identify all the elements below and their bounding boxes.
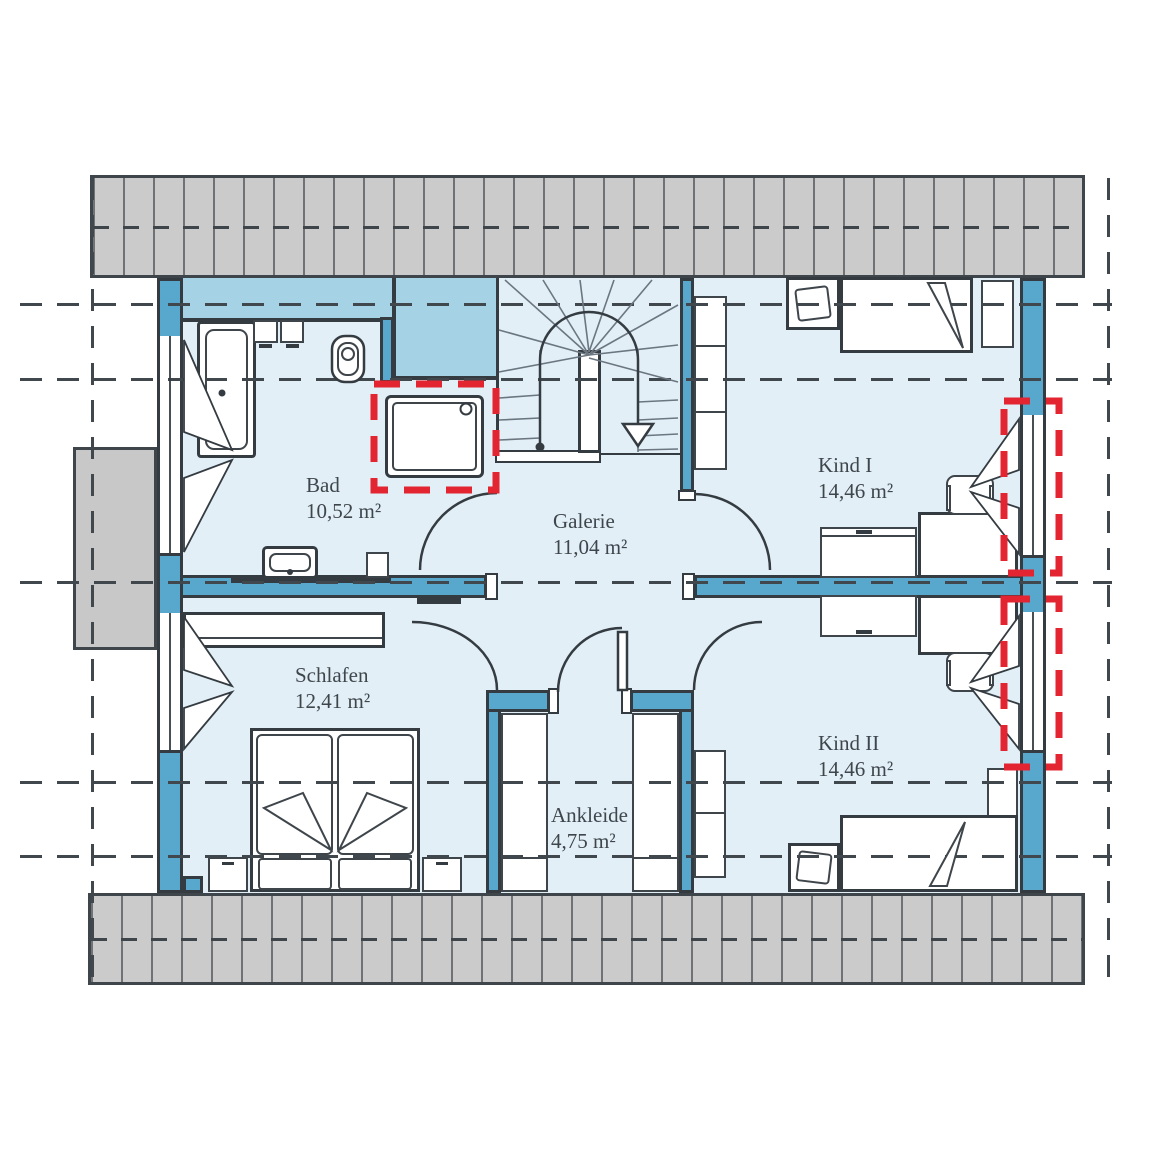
schlafen-wardrobe-rail	[186, 637, 382, 639]
ankleide-wardrobe-left	[501, 713, 548, 892]
kind1-wardrobe	[694, 296, 727, 470]
stair-spine-wall	[578, 350, 601, 453]
left-wall-segment-top	[157, 278, 183, 339]
left-window-schlafen	[157, 613, 183, 753]
room-area: 11,04 m²	[553, 534, 627, 560]
schlafen-radiator	[417, 598, 461, 604]
room-label-galerie: Galerie 11,04 m²	[553, 508, 627, 560]
double-bed-mattress-left	[256, 734, 333, 855]
roof-band-bottom	[88, 893, 1085, 985]
schlafen-wardrobe	[183, 612, 385, 648]
kind1-wardrobe-div2	[696, 411, 725, 413]
right-window-kind1	[1020, 415, 1046, 558]
roof-band-top	[90, 175, 1085, 278]
nightstand-right	[422, 857, 462, 892]
kind1-chair-arm-left	[946, 485, 951, 511]
room-area: 14,46 m²	[818, 756, 893, 782]
room-label-schlafen: Schlafen 12,41 m²	[295, 662, 370, 714]
double-bed-mattress-right	[337, 734, 414, 855]
room-name: Galerie	[553, 508, 627, 534]
kind1-sideboard-line	[822, 535, 915, 537]
headroom-dash-line-1	[20, 303, 1112, 306]
room-name: Schlafen	[295, 662, 370, 688]
shower-tray-inner	[392, 402, 477, 471]
kind1-desk	[918, 512, 1018, 578]
kind2-sideboard-handle	[856, 630, 872, 634]
right-wall-segment-top	[1020, 278, 1046, 418]
headroom-dash-line-4	[20, 855, 1112, 858]
room-area: 10,52 m²	[306, 498, 381, 524]
ankleide-wardrobe-right	[632, 713, 679, 892]
right-wall-segment-mid	[1020, 555, 1046, 615]
wall-cap-kind1-kind2	[682, 573, 695, 600]
overhang-dash-right	[1107, 178, 1110, 988]
kind2-wardrobe-east	[987, 768, 1018, 817]
nightstand-right-lamp	[436, 862, 448, 865]
kind1-sideboard-handle	[856, 530, 872, 534]
bad-knee-zone-left	[183, 278, 392, 322]
kind1-wardrobe-div1	[696, 345, 725, 347]
bathtub-inner	[205, 329, 248, 450]
left-wall-corner-stub	[183, 876, 203, 893]
kind2-wardrobe-west	[694, 750, 726, 878]
roof-band-top-dash	[93, 226, 1082, 229]
left-wall-segment-bottom	[157, 750, 183, 893]
ankleide-wall-north-left	[486, 690, 550, 712]
room-label-bad: Bad 10,52 m²	[306, 472, 381, 524]
bath-cabinet-handle-2	[286, 344, 299, 348]
room-area: 14,46 m²	[818, 478, 893, 504]
wall-stair-kind1	[680, 278, 694, 492]
kind2-chair-arm-right	[989, 660, 994, 686]
shower-tray	[385, 395, 484, 478]
bath-cabinet-2	[280, 320, 304, 343]
washbasin	[262, 546, 318, 579]
kind1-nightstand	[981, 280, 1014, 348]
room-label-ankleide: Ankleide 4,75 m²	[551, 802, 628, 854]
kind2-sideboard	[820, 595, 917, 637]
kind2-desk	[918, 595, 1018, 655]
headroom-dash-line-3	[20, 781, 1112, 784]
bath-cabinet-1	[253, 320, 278, 343]
kind2-pillow-box	[788, 843, 840, 892]
room-area: 4,75 m²	[551, 828, 628, 854]
ankleide-cap-left	[548, 688, 559, 714]
wall-cap-stair-kind1	[678, 490, 696, 501]
right-window-kind2	[1020, 612, 1046, 753]
headroom-dash-line-2	[20, 378, 1112, 381]
kind1-bed	[840, 277, 973, 353]
ridge-dash-line	[20, 581, 1112, 584]
kind1-chair-arm-right	[989, 485, 994, 511]
bath-cup	[366, 552, 389, 578]
room-name: Kind I	[818, 452, 893, 478]
ankleide-wall-right	[679, 692, 694, 893]
double-bed-pillow-left	[258, 858, 332, 890]
room-name: Kind II	[818, 730, 893, 756]
bathtub	[197, 321, 256, 458]
room-area: 12,41 m²	[295, 688, 370, 714]
kind2-bed	[840, 815, 1018, 892]
room-label-kind2: Kind II 14,46 m²	[818, 730, 893, 782]
kind2-chair-arm-left	[946, 660, 951, 686]
room-name: Bad	[306, 472, 381, 498]
kind2-chair	[946, 652, 994, 692]
kind1-chair	[946, 475, 994, 515]
ankleide-cap-right	[621, 688, 632, 714]
ankleide-wall-north-right	[630, 690, 694, 712]
floor-plan: Bad 10,52 m² Galerie 11,04 m² Kind I 14,…	[0, 0, 1170, 1170]
overhang-dash-left	[91, 178, 94, 988]
room-label-kind1: Kind I 14,46 m²	[818, 452, 893, 504]
left-gray-block	[73, 447, 157, 650]
bad-knee-zone-right	[392, 278, 497, 380]
left-window-bad	[157, 336, 183, 556]
roof-band-bottom-dash	[91, 938, 1082, 941]
kind2-wardrobe-west-div	[696, 812, 724, 814]
bath-cabinet-handle-1	[259, 344, 272, 348]
nightstand-left	[208, 857, 248, 892]
bad-knee-wall-stub	[380, 317, 394, 383]
double-bed-pillow-right	[338, 858, 412, 890]
wall-cap-bad-schlafen	[485, 573, 498, 600]
right-wall-segment-bottom	[1020, 750, 1046, 893]
nightstand-left-lamp	[222, 862, 234, 865]
ankleide-wall-left	[486, 692, 501, 893]
room-name: Ankleide	[551, 802, 628, 828]
washbasin-inner	[269, 553, 311, 572]
kind1-sideboard	[820, 527, 917, 578]
stair-bottom-line-right	[601, 453, 680, 455]
